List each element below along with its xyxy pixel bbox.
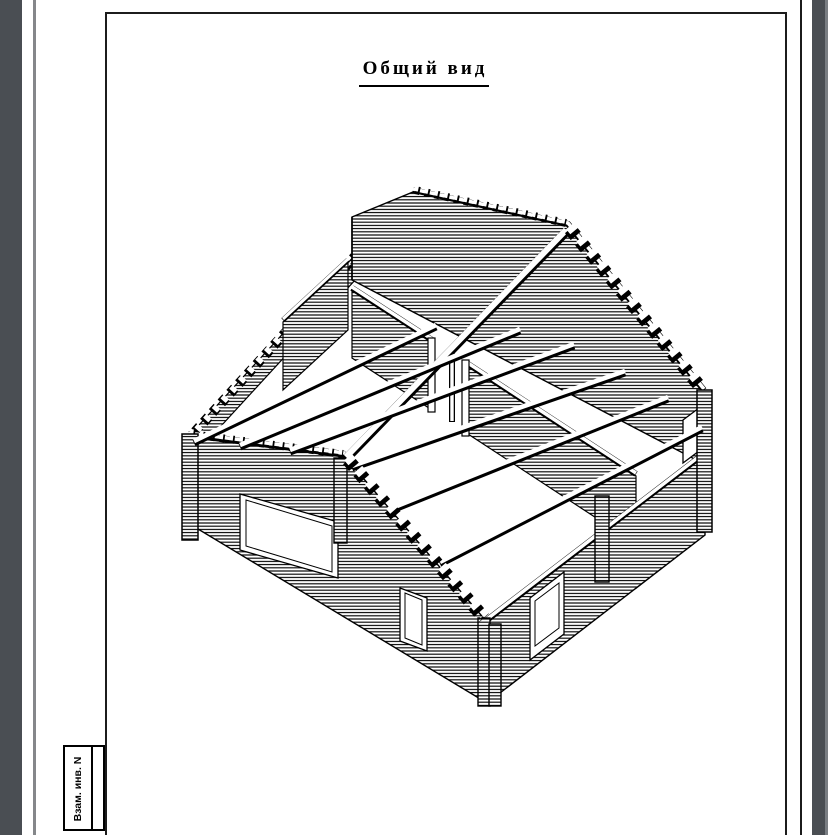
corner-stack-left	[182, 434, 198, 540]
corner-stack-front	[489, 624, 501, 706]
corner-stack-right	[697, 390, 712, 532]
general-view-drawing	[0, 0, 828, 835]
partition-end-stack	[334, 458, 347, 543]
viewer-window: Общий вид Взам. инв. N	[0, 0, 828, 835]
corner-stack-front	[478, 618, 490, 706]
partition-end-stack	[595, 496, 609, 582]
